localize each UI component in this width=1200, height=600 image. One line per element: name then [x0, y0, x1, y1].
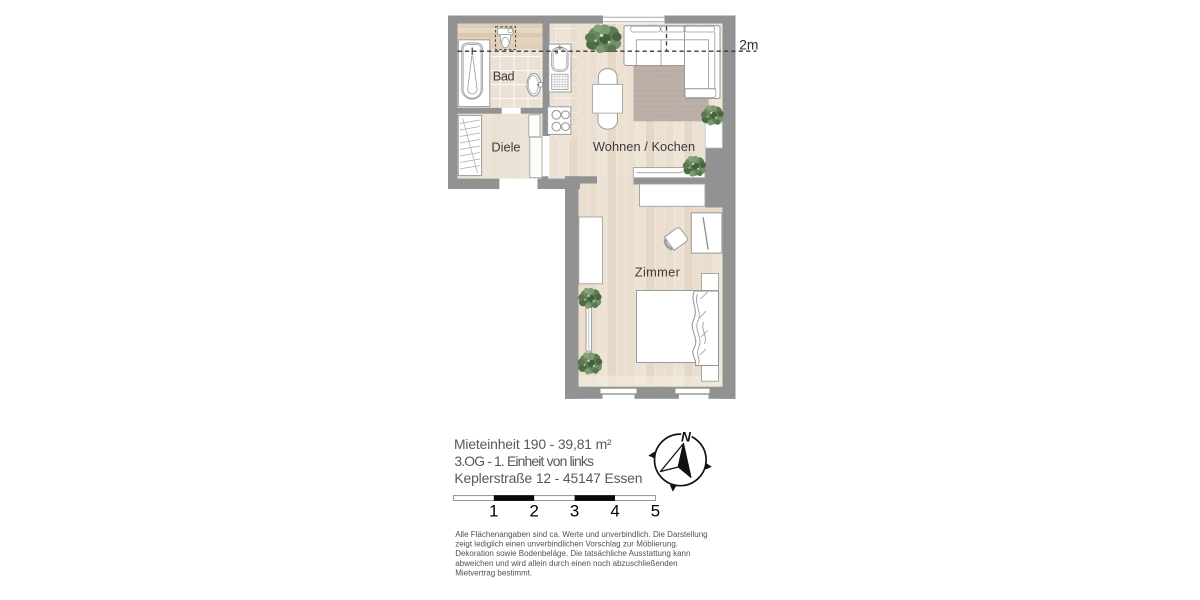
svg-text:N: N	[681, 430, 692, 445]
svg-text:abweichen und wird allein durc: abweichen und wird allein durch einen no…	[455, 559, 677, 568]
svg-text:Zimmer: Zimmer	[635, 265, 681, 280]
svg-text:Dekoration sowie Bodenbeläge.: Dekoration sowie Bodenbeläge. Die tatsäc…	[455, 549, 690, 558]
svg-text:Wohnen / Kochen: Wohnen / Kochen	[593, 139, 695, 154]
svg-text:2: 2	[530, 501, 539, 520]
svg-text:Keplerstraße 12 - 45147 Essen: Keplerstraße 12 - 45147 Essen	[454, 470, 642, 486]
svg-text:Diele: Diele	[491, 139, 520, 154]
svg-text:Alle Flächenangaben sind ca. W: Alle Flächenangaben sind ca. Werte und u…	[455, 530, 707, 539]
svg-text:Bad: Bad	[493, 68, 515, 83]
svg-text:5: 5	[651, 501, 660, 520]
svg-text:Mieteinheit 190 - 39,81 m²: Mieteinheit 190 - 39,81 m²	[454, 436, 612, 452]
svg-text:1: 1	[489, 501, 498, 520]
svg-text:3: 3	[570, 501, 579, 520]
svg-text:4: 4	[610, 501, 619, 520]
svg-text:Mietvertrag bestimmt.: Mietvertrag bestimmt.	[455, 568, 532, 577]
svg-text:zeigt lediglich einen unverbin: zeigt lediglich einen unverbindlichen Vo…	[455, 540, 678, 549]
svg-text:2m: 2m	[739, 38, 758, 53]
svg-text:3.OG - 1. Einheit von links: 3.OG - 1. Einheit von links	[454, 453, 594, 469]
